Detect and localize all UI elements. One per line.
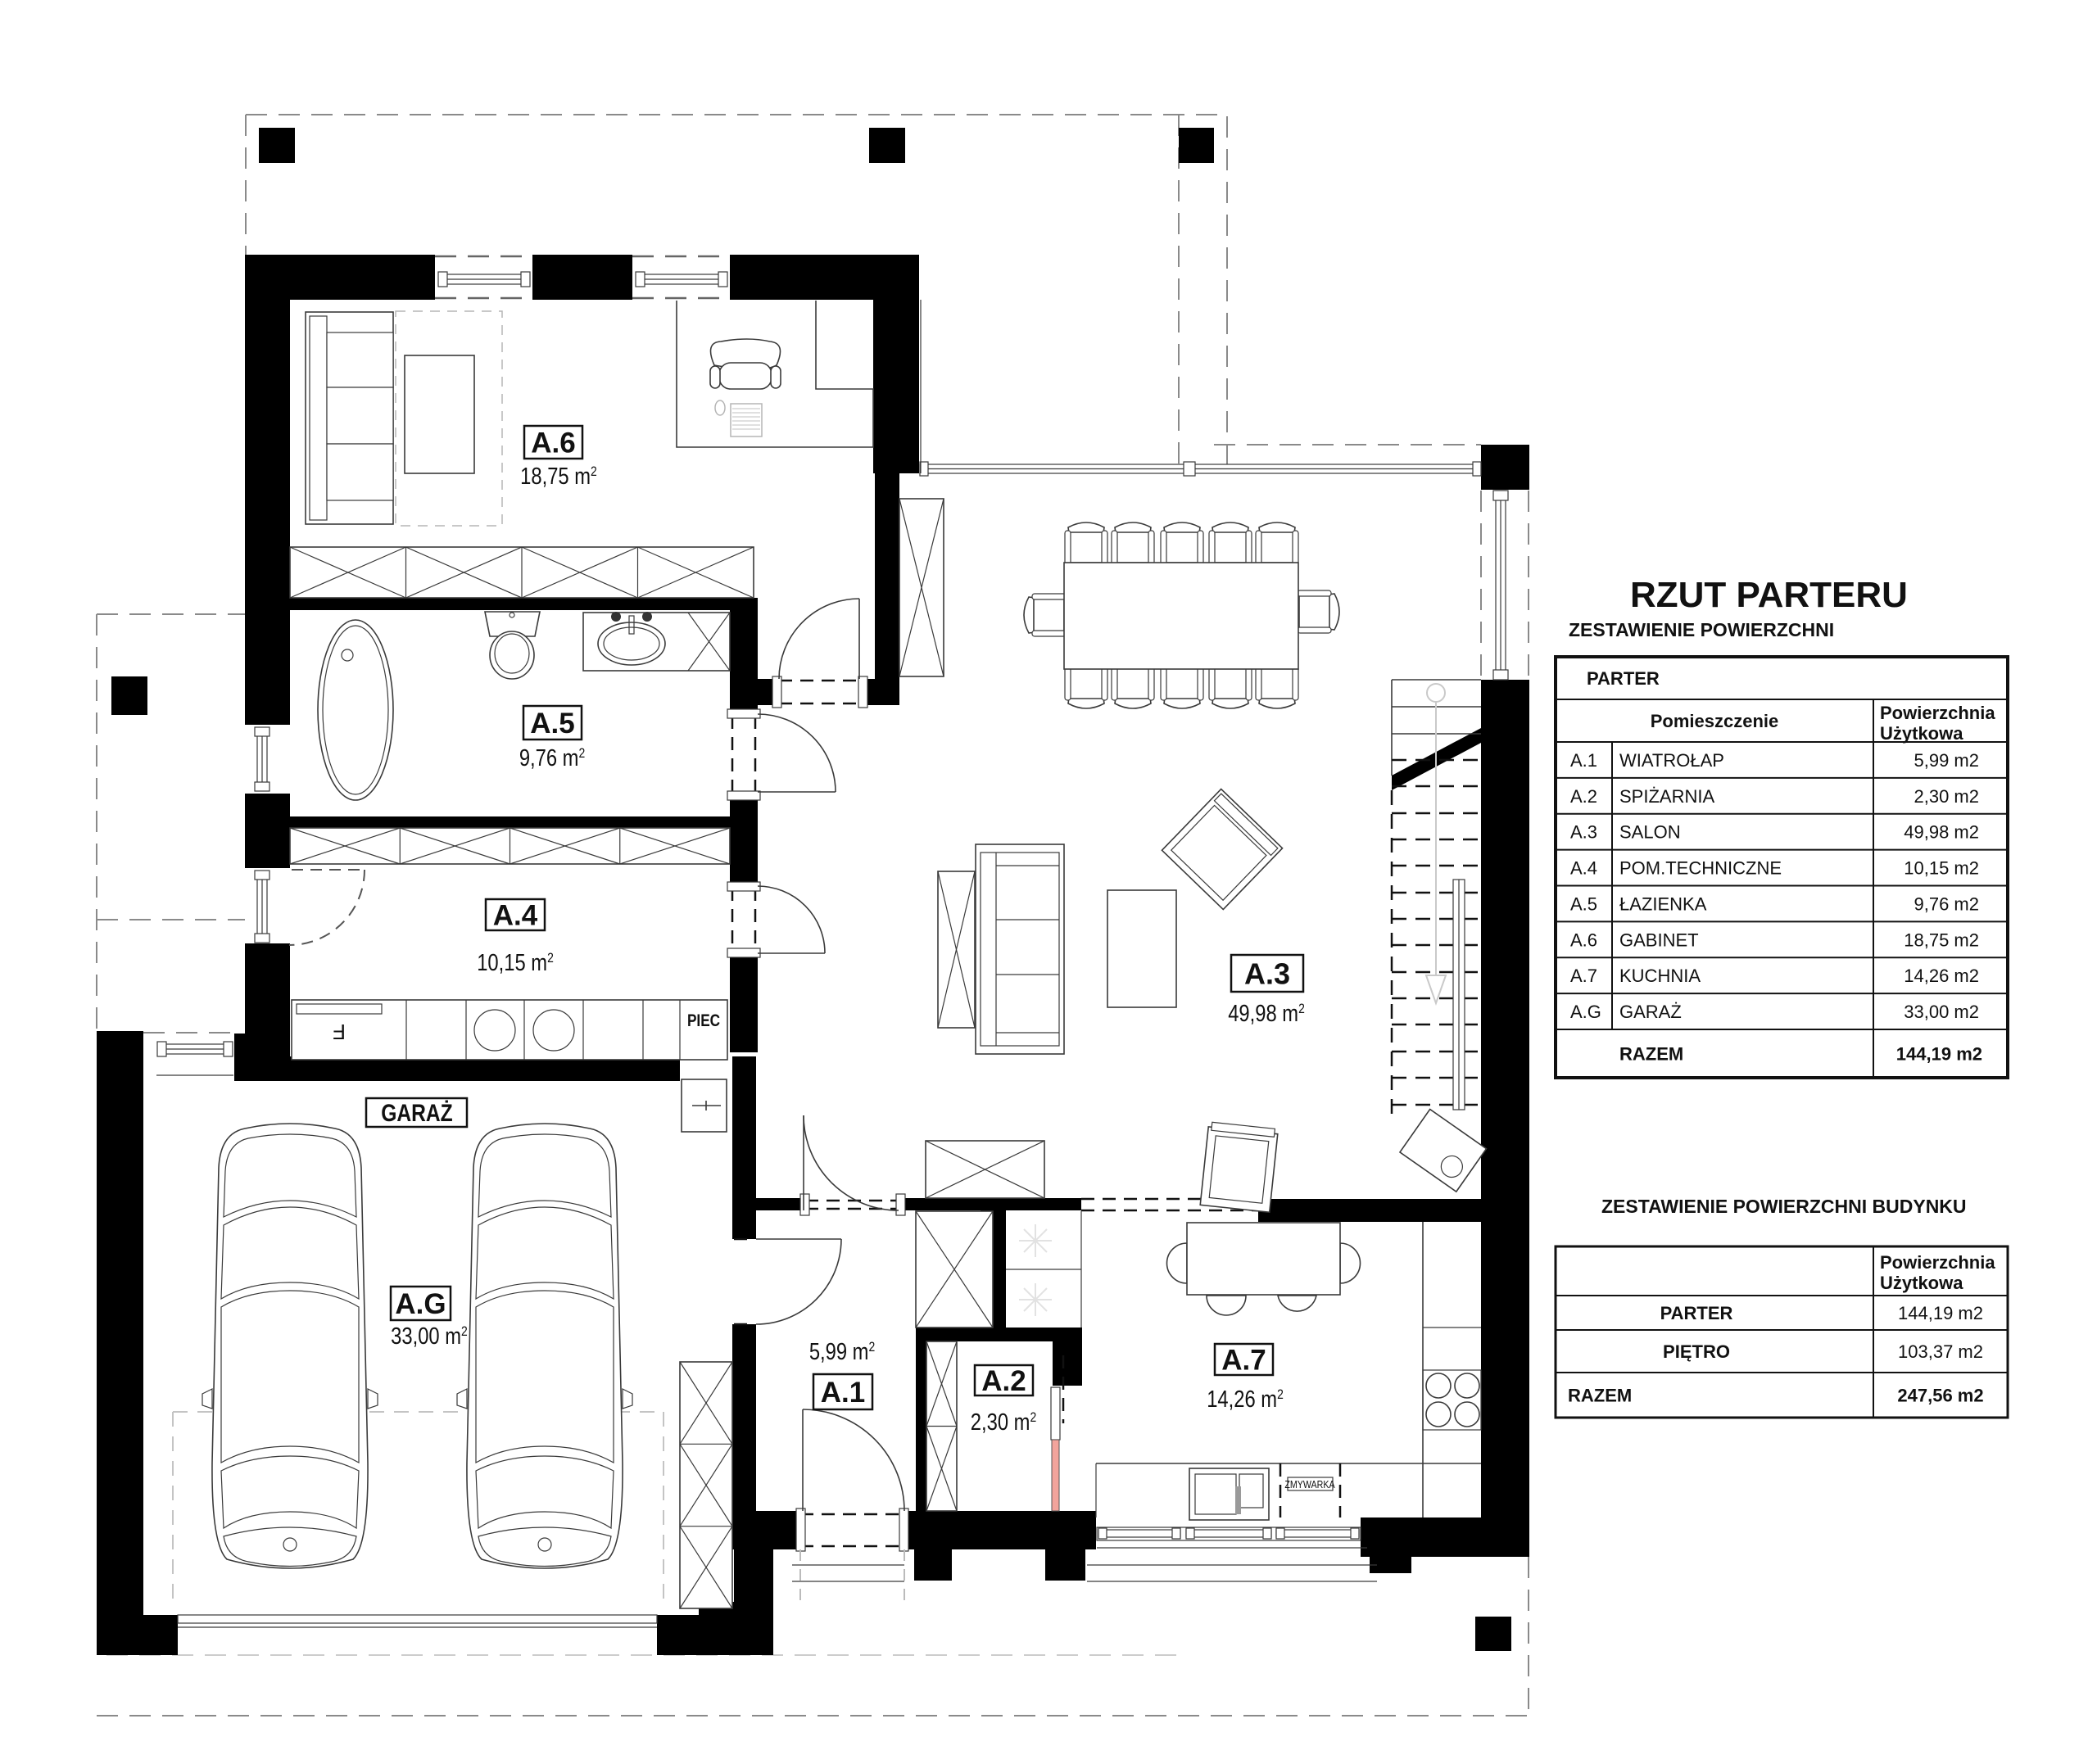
svg-text:A.7: A.7	[1221, 1345, 1266, 1377]
svg-text:A.6: A.6	[531, 427, 575, 459]
svg-text:RZUT PARTERU: RZUT PARTERU	[1630, 575, 1908, 615]
svg-text:247,56 m2: 247,56 m2	[1897, 1386, 1983, 1406]
svg-text:A.6: A.6	[1570, 929, 1597, 950]
svg-text:F: F	[333, 1020, 346, 1044]
svg-text:18,75 m2: 18,75 m2	[520, 463, 597, 490]
svg-text:KUCHNIA: KUCHNIA	[1619, 966, 1701, 986]
svg-text:A.3: A.3	[1570, 822, 1597, 843]
svg-text:Powierzchnia: Powierzchnia	[1880, 703, 1995, 723]
svg-text:49,98 m2: 49,98 m2	[1228, 1000, 1305, 1027]
svg-text:PARTER: PARTER	[1660, 1303, 1733, 1323]
svg-text:103,37 m2: 103,37 m2	[1898, 1341, 1983, 1362]
svg-text:2,30 m2: 2,30 m2	[971, 1409, 1036, 1436]
svg-text:PIEC: PIEC	[687, 1012, 720, 1031]
svg-text:9,76 m2: 9,76 m2	[519, 744, 585, 771]
svg-text:144,19 m2: 144,19 m2	[1896, 1044, 1982, 1065]
svg-text:A.1: A.1	[821, 1377, 865, 1409]
svg-text:A.5: A.5	[530, 708, 574, 740]
svg-text:RAZEM: RAZEM	[1619, 1044, 1683, 1065]
svg-text:14,26 m2: 14,26 m2	[1904, 966, 1979, 986]
svg-text:9,76 m2: 9,76 m2	[1914, 893, 1980, 914]
svg-text:Powierzchnia: Powierzchnia	[1880, 1252, 1995, 1273]
svg-text:ZESTAWIENIE POWIERZCHNI: ZESTAWIENIE POWIERZCHNI	[1569, 619, 1834, 640]
svg-text:A.7: A.7	[1570, 966, 1597, 986]
svg-text:10,15 m2: 10,15 m2	[1904, 858, 1979, 879]
svg-text:5,99 m2: 5,99 m2	[1914, 750, 1980, 771]
svg-text:14,26 m2: 14,26 m2	[1207, 1386, 1284, 1413]
svg-text:Użytkowa: Użytkowa	[1880, 1273, 1963, 1293]
svg-text:2,30 m2: 2,30 m2	[1914, 786, 1980, 807]
svg-text:GABINET: GABINET	[1619, 929, 1699, 950]
svg-text:144,19 m2: 144,19 m2	[1898, 1303, 1983, 1323]
svg-text:A.4: A.4	[493, 900, 538, 932]
svg-text:33,00 m2: 33,00 m2	[391, 1323, 468, 1350]
svg-text:GARAŻ: GARAŻ	[1619, 1002, 1682, 1022]
svg-text:RAZEM: RAZEM	[1568, 1386, 1632, 1406]
svg-text:ZMYWARKA: ZMYWARKA	[1284, 1478, 1334, 1490]
svg-text:A.2: A.2	[981, 1365, 1026, 1397]
svg-text:GARAŻ: GARAŻ	[381, 1099, 452, 1127]
svg-text:ŁAZIENKA: ŁAZIENKA	[1619, 893, 1707, 914]
svg-text:A.5: A.5	[1570, 893, 1597, 914]
svg-text:SALON: SALON	[1619, 822, 1681, 843]
svg-text:A.3: A.3	[1244, 957, 1290, 990]
svg-text:A.G: A.G	[395, 1288, 446, 1320]
svg-text:Użytkowa: Użytkowa	[1880, 723, 1963, 744]
svg-text:5,99 m2: 5,99 m2	[809, 1338, 875, 1365]
svg-text:WIATROŁAP: WIATROŁAP	[1619, 750, 1724, 771]
svg-text:POM.TECHNICZNE: POM.TECHNICZNE	[1619, 858, 1782, 879]
svg-text:ZESTAWIENIE POWIERZCHNI BUDYNK: ZESTAWIENIE POWIERZCHNI BUDYNKU	[1601, 1196, 1967, 1217]
svg-text:10,15 m2: 10,15 m2	[477, 949, 554, 976]
svg-text:A.G: A.G	[1570, 1002, 1601, 1022]
svg-text:A.1: A.1	[1570, 750, 1597, 771]
svg-text:SPIŻARNIA: SPIŻARNIA	[1619, 786, 1714, 807]
svg-text:A.4: A.4	[1570, 858, 1597, 879]
svg-text:A.2: A.2	[1570, 786, 1597, 807]
svg-text:PIĘTRO: PIĘTRO	[1663, 1341, 1730, 1362]
svg-text:18,75 m2: 18,75 m2	[1904, 929, 1979, 950]
svg-text:Pomieszczenie: Pomieszczenie	[1651, 711, 1779, 731]
svg-text:33,00 m2: 33,00 m2	[1904, 1002, 1979, 1022]
svg-text:PARTER: PARTER	[1587, 668, 1660, 689]
svg-text:49,98 m2: 49,98 m2	[1904, 822, 1979, 843]
